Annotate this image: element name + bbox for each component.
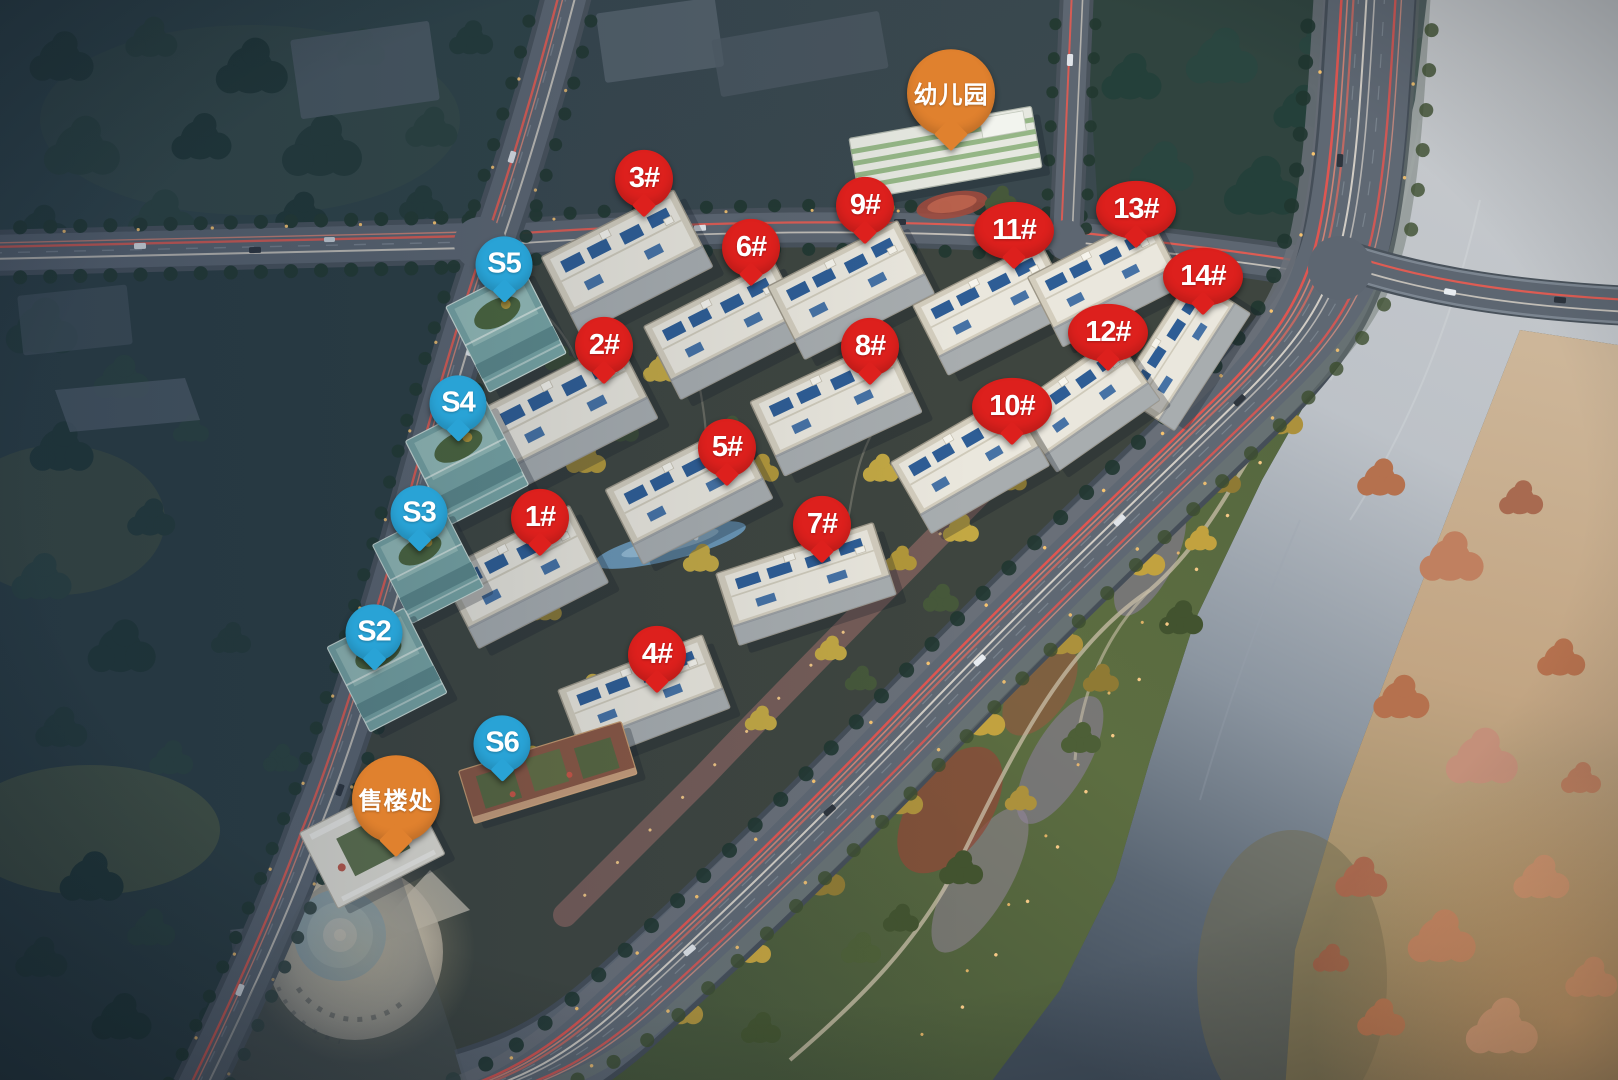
pin-label: 售楼处 bbox=[359, 781, 434, 816]
pin-label: 8# bbox=[855, 329, 885, 362]
pin-6[interactable]: 6# bbox=[722, 219, 780, 277]
site-plan: 幼儿园3#9#13#11#6#S514#12#2#8#S410#5#S31#7#… bbox=[0, 0, 1618, 1080]
pin-label: S5 bbox=[487, 247, 520, 280]
pin-s2[interactable]: S2 bbox=[346, 604, 403, 661]
pin-sales-office[interactable]: 售楼处 bbox=[352, 755, 440, 843]
pin-5[interactable]: 5# bbox=[698, 419, 756, 477]
pin-s5[interactable]: S5 bbox=[476, 236, 533, 293]
pin-14[interactable]: 14# bbox=[1163, 248, 1243, 306]
pin-4[interactable]: 4# bbox=[628, 626, 686, 684]
pin-kindergarten[interactable]: 幼儿园 bbox=[907, 49, 995, 137]
pin-1[interactable]: 1# bbox=[511, 489, 569, 547]
pin-9[interactable]: 9# bbox=[836, 177, 894, 235]
pin-s3[interactable]: S3 bbox=[391, 485, 448, 542]
pin-label: 5# bbox=[712, 430, 742, 463]
pin-10[interactable]: 10# bbox=[972, 378, 1052, 436]
pin-s6[interactable]: S6 bbox=[474, 715, 531, 772]
pin-label: 1# bbox=[525, 500, 555, 533]
pin-3[interactable]: 3# bbox=[615, 150, 673, 208]
pin-label: S6 bbox=[485, 726, 518, 759]
pin-label: 14# bbox=[1180, 259, 1225, 292]
pin-11[interactable]: 11# bbox=[974, 202, 1054, 260]
pin-label: 11# bbox=[992, 213, 1036, 246]
pin-8[interactable]: 8# bbox=[841, 318, 899, 376]
pin-2[interactable]: 2# bbox=[575, 317, 633, 375]
pin-13[interactable]: 13# bbox=[1096, 181, 1176, 239]
pin-label: 6# bbox=[736, 230, 766, 263]
marker-layer: 幼儿园3#9#13#11#6#S514#12#2#8#S410#5#S31#7#… bbox=[0, 0, 1618, 1080]
pin-s4[interactable]: S4 bbox=[430, 375, 487, 432]
pin-label: 7# bbox=[807, 507, 837, 540]
pin-label: 12# bbox=[1085, 315, 1130, 348]
pin-label: 10# bbox=[989, 389, 1034, 422]
pin-label: S3 bbox=[402, 496, 435, 529]
pin-label: S4 bbox=[441, 386, 474, 419]
pin-label: S2 bbox=[357, 615, 390, 648]
pin-label: 9# bbox=[850, 188, 880, 221]
pin-12[interactable]: 12# bbox=[1068, 304, 1148, 362]
pin-7[interactable]: 7# bbox=[793, 496, 851, 554]
pin-label: 幼儿园 bbox=[914, 75, 989, 110]
pin-label: 2# bbox=[589, 328, 619, 361]
pin-label: 4# bbox=[642, 637, 672, 670]
pin-label: 13# bbox=[1113, 192, 1158, 225]
pin-label: 3# bbox=[629, 161, 659, 194]
